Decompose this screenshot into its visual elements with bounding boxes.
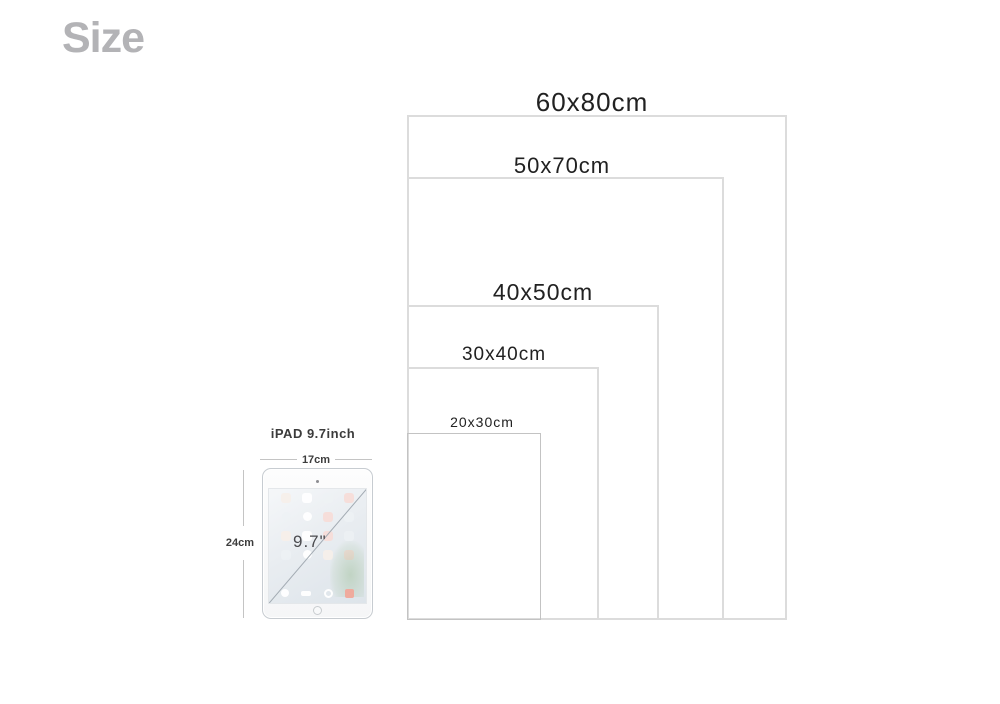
app-icon xyxy=(344,493,354,503)
ipad-screen: 9.7" xyxy=(268,488,367,604)
ipad-width-measure: 17cm xyxy=(260,453,372,466)
size-label-20x30: 20x30cm xyxy=(450,414,514,430)
dock-app-icon xyxy=(281,589,289,597)
measure-line-top xyxy=(243,470,244,526)
ipad-illustration: 9.7" xyxy=(262,468,373,619)
camera-icon xyxy=(316,480,319,483)
app-icon xyxy=(281,531,291,541)
measure-line-right xyxy=(335,459,372,460)
size-rect-20x30 xyxy=(407,433,541,620)
measure-line-bottom xyxy=(243,560,244,618)
dock-app-icon xyxy=(301,591,311,596)
app-icon xyxy=(282,512,291,521)
size-label-50x70: 50x70cm xyxy=(514,153,610,179)
app-icon xyxy=(323,493,333,503)
ipad-name-label: iPAD 9.7inch xyxy=(271,426,356,441)
home-button-icon xyxy=(313,606,322,615)
dock-app-icon xyxy=(324,589,333,598)
dock-bar xyxy=(281,587,354,599)
size-label-60x80: 60x80cm xyxy=(536,87,649,118)
size-chart-canvas: Size 60x80cm 50x70cm 40x50cm 30x40cm 20x… xyxy=(0,0,1000,704)
ipad-width-label: 17cm xyxy=(302,454,330,466)
app-icon xyxy=(303,512,312,521)
dock-app-icon xyxy=(345,589,354,598)
app-icon xyxy=(344,531,354,541)
screen-size-label: 9.7" xyxy=(293,532,327,552)
app-icon xyxy=(302,493,312,503)
measure-line-left xyxy=(260,459,297,460)
size-label-30x40: 30x40cm xyxy=(462,344,546,366)
app-icon xyxy=(281,493,291,503)
ipad-height-label: 24cm xyxy=(226,537,254,549)
app-icon xyxy=(323,512,333,522)
app-icon xyxy=(281,550,291,560)
page-title: Size xyxy=(62,14,144,63)
size-label-40x50: 40x50cm xyxy=(493,279,593,306)
